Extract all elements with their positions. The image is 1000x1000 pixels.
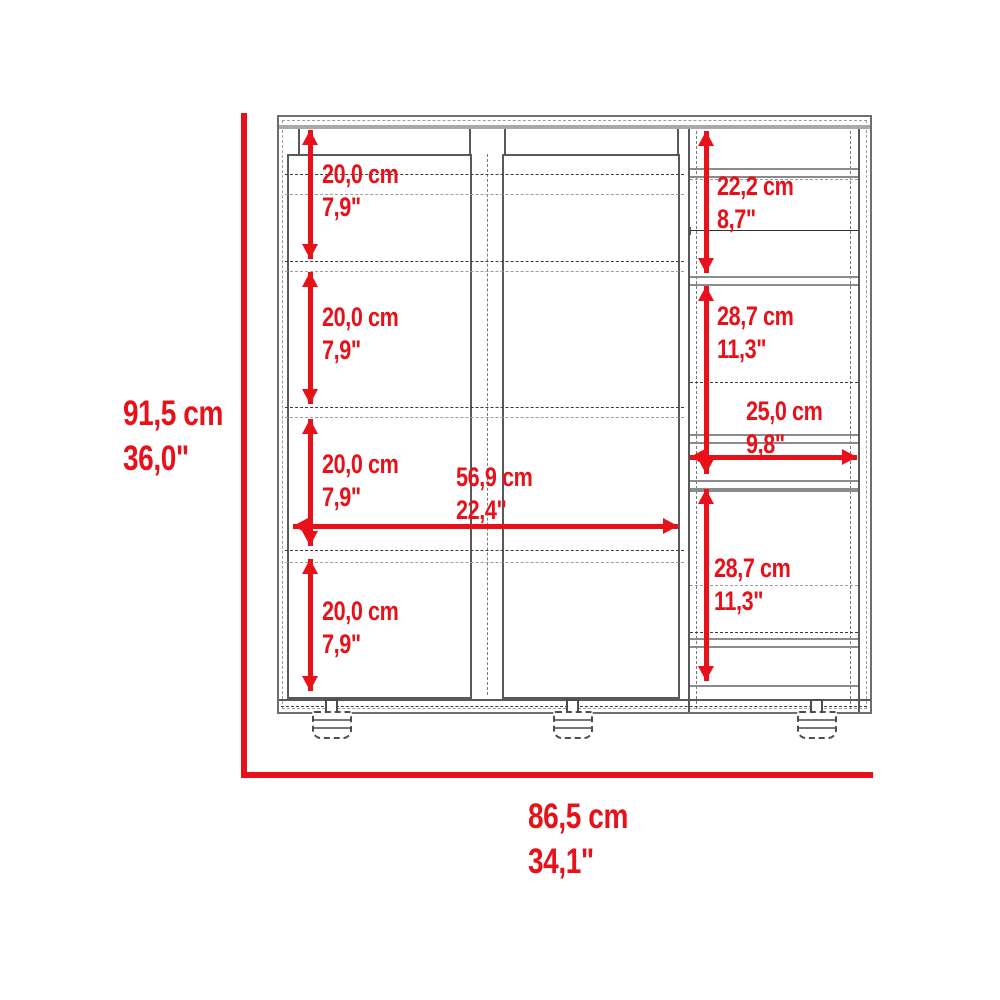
shelf-line — [690, 638, 858, 648]
caster-wheel — [797, 699, 837, 741]
hidden-shelf-line — [285, 271, 684, 272]
dimension-inch: 9,8" — [746, 428, 822, 461]
dimension-cm: 56,9 cm — [456, 461, 532, 494]
caster-wheel — [553, 699, 593, 741]
dimension-cm: 91,5 cm — [123, 391, 223, 436]
shelf-hidden-line — [690, 382, 858, 383]
dimension-inch: 7,9" — [322, 191, 398, 224]
furniture-dimension-diagram: 91,5 cm 36,0" 86,5 cm 34,1" 20,0 cm 7,9"… — [0, 0, 1000, 1000]
shelf-line — [690, 490, 858, 492]
hidden-shelf-line — [285, 407, 684, 408]
overall-width-line — [241, 772, 873, 778]
wheel-axle-line — [799, 724, 835, 729]
dimension-inch: 22,4" — [456, 494, 532, 527]
shelf-hidden-line — [690, 632, 858, 633]
right-column-hidden-edge — [850, 131, 851, 709]
dimension-inch: 11,3" — [717, 333, 793, 366]
cabinet-top-panel — [279, 125, 870, 129]
dimension-inch: 7,9" — [322, 628, 398, 661]
shelf-line — [690, 480, 858, 490]
dimension-cm: 28,7 cm — [717, 300, 793, 333]
dimension-inch: 34,1" — [528, 839, 628, 884]
left-section-2-arrow — [308, 272, 313, 404]
interior-width-label: 56,9 cm 22,4" — [456, 461, 532, 527]
wheel-axle-line — [555, 724, 591, 729]
wheel-axle-line — [799, 716, 835, 721]
shelf-line — [690, 685, 858, 687]
caster-wheel — [312, 699, 352, 741]
right-section-1-arrow — [704, 131, 709, 273]
dimension-inch: 11,3" — [714, 585, 790, 618]
left-section-1-arrow — [308, 130, 313, 259]
frame-stile-line — [504, 129, 506, 154]
dimension-cm: 20,0 cm — [322, 595, 398, 628]
hidden-shelf-line — [285, 261, 684, 262]
dimension-cm: 28,7 cm — [714, 552, 790, 585]
left-section-1-label: 20,0 cm 7,9" — [322, 158, 398, 224]
dimension-inch: 7,9" — [322, 481, 398, 514]
dimension-inch: 36,0" — [123, 436, 223, 481]
wheel-axle-line — [314, 716, 350, 721]
left-section-4-arrow — [308, 559, 313, 691]
hidden-shelf-line — [285, 562, 684, 563]
left-section-3-label: 20,0 cm 7,9" — [322, 448, 398, 514]
wheel-body — [312, 711, 352, 739]
left-section-2-label: 20,0 cm 7,9" — [322, 301, 398, 367]
wheel-body — [553, 711, 593, 739]
shelf-line — [690, 276, 858, 286]
dimension-inch: 7,9" — [322, 334, 398, 367]
right-door — [502, 154, 680, 699]
frame-stile-line — [677, 129, 679, 154]
overall-height-label: 91,5 cm 36,0" — [123, 391, 223, 481]
dimension-cm: 20,0 cm — [322, 448, 398, 481]
right-column-right-panel — [858, 129, 860, 712]
right-section-4-arrow — [704, 489, 709, 681]
dimension-inch: 8,7" — [717, 203, 793, 236]
wheel-axle-line — [314, 724, 350, 729]
dimension-cm: 25,0 cm — [746, 395, 822, 428]
right-section-2-label: 28,7 cm 11,3" — [717, 300, 793, 366]
hidden-shelf-line — [285, 550, 684, 551]
right-column-width-label: 25,0 cm 9,8" — [746, 395, 822, 461]
overall-height-line — [241, 113, 247, 778]
dimension-cm: 22,2 cm — [717, 170, 793, 203]
door-gap-centerline — [487, 154, 488, 695]
dimension-cm: 20,0 cm — [322, 158, 398, 191]
dimension-cm: 86,5 cm — [528, 794, 628, 839]
wheel-axle-line — [555, 716, 591, 721]
right-section-2-arrow — [704, 286, 709, 474]
right-column-left-panel — [688, 129, 690, 712]
frame-stile-line — [469, 129, 471, 154]
right-section-4-label: 28,7 cm 11,3" — [714, 552, 790, 618]
right-section-1-label: 22,2 cm 8,7" — [717, 170, 793, 236]
left-section-4-label: 20,0 cm 7,9" — [322, 595, 398, 661]
right-column-hidden-edge — [696, 131, 697, 709]
overall-width-label: 86,5 cm 34,1" — [528, 794, 628, 884]
hidden-shelf-line — [285, 417, 684, 418]
dimension-cm: 20,0 cm — [322, 301, 398, 334]
frame-stile-line — [298, 129, 300, 154]
wheel-body — [797, 711, 837, 739]
